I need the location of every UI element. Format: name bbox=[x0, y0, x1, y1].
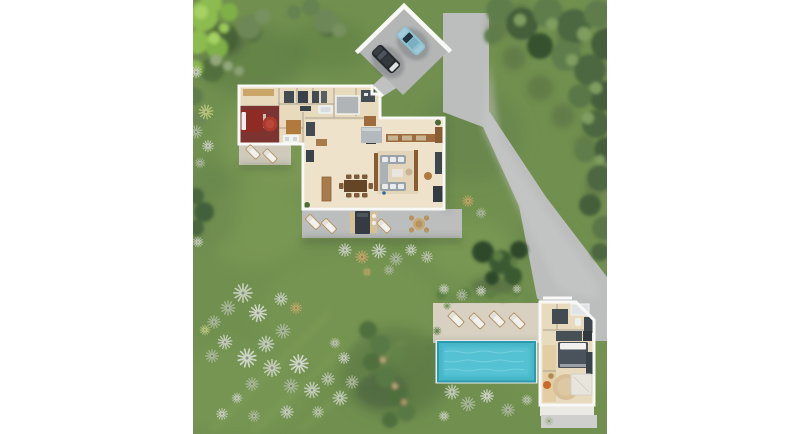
hall-bench bbox=[316, 139, 327, 146]
bench-cushion bbox=[388, 136, 398, 141]
outdoor-chair bbox=[424, 227, 429, 232]
closet-west-wall bbox=[306, 122, 315, 136]
guest-closet bbox=[552, 309, 568, 324]
site-plan-rendering bbox=[0, 0, 800, 434]
outdoor-chair bbox=[409, 215, 414, 220]
inner-patio-skylight bbox=[336, 96, 359, 114]
closet bbox=[284, 91, 294, 103]
table-center bbox=[416, 221, 423, 228]
wood-screen bbox=[414, 150, 418, 191]
fireplace-unit bbox=[433, 186, 443, 202]
sink bbox=[293, 137, 297, 141]
dining-table bbox=[344, 180, 367, 192]
office-desk bbox=[286, 120, 301, 134]
closet bbox=[312, 91, 319, 103]
armchair-round bbox=[406, 169, 413, 176]
stool bbox=[372, 214, 376, 218]
kitchen-cabinet bbox=[364, 116, 376, 126]
island-top bbox=[362, 128, 381, 131]
guest-bed bbox=[558, 342, 588, 368]
bathtub-inner bbox=[321, 107, 331, 112]
vanity-dark bbox=[300, 106, 311, 111]
wood-sideboard bbox=[322, 177, 331, 201]
master-bed-pillows bbox=[242, 112, 247, 130]
wood-stool bbox=[548, 373, 554, 379]
stool bbox=[372, 221, 376, 225]
guest-house bbox=[540, 298, 594, 405]
sink bbox=[285, 137, 289, 141]
east-cabinet-dark bbox=[435, 152, 442, 174]
outdoor-chair bbox=[409, 227, 414, 232]
toilet bbox=[575, 318, 581, 326]
indoor-plant bbox=[304, 202, 310, 208]
orange-pouf bbox=[543, 381, 551, 389]
bench-cushion bbox=[402, 136, 412, 141]
closet bbox=[298, 91, 308, 103]
east-cabinet-wood bbox=[435, 127, 443, 143]
guest-east-closet bbox=[586, 352, 593, 374]
sofa-left bbox=[380, 162, 388, 184]
bench-cushion bbox=[416, 136, 426, 141]
guest-wardrobe-dark bbox=[583, 331, 592, 341]
outdoor-chair bbox=[424, 215, 429, 220]
wood-screen bbox=[374, 153, 378, 191]
kitchen-sink bbox=[364, 93, 368, 96]
indoor-plant bbox=[435, 120, 441, 126]
closet-west-wall bbox=[306, 150, 314, 162]
guest-wardrobe bbox=[556, 331, 582, 341]
wardrobe-long bbox=[243, 89, 274, 96]
guesthouse-wood-floor bbox=[543, 345, 556, 402]
closet bbox=[321, 91, 327, 103]
decor-vase bbox=[382, 191, 386, 195]
grill-top bbox=[357, 213, 368, 217]
lounge-chair bbox=[424, 172, 432, 180]
rug-inner bbox=[266, 120, 275, 129]
coffee-table bbox=[392, 169, 403, 177]
